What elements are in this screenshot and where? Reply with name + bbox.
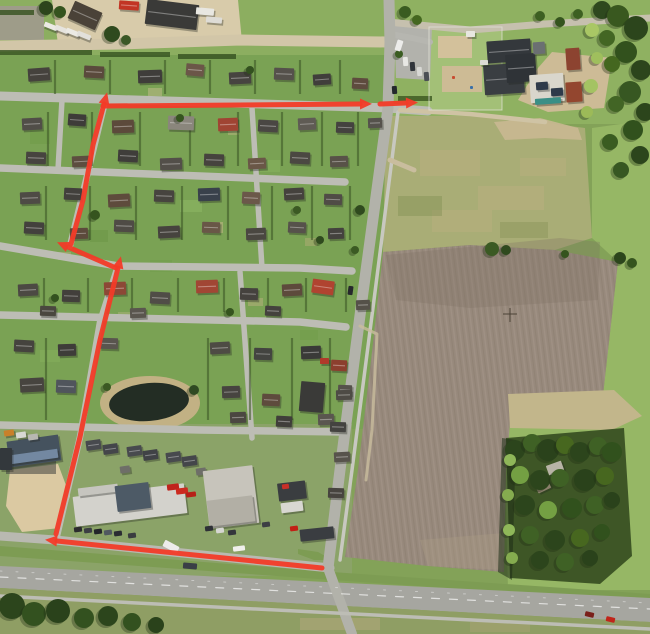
tree [503,524,515,536]
tree [355,205,365,215]
building [62,290,82,305]
roof-ridge [74,161,88,162]
tree [581,106,593,118]
tree [189,385,199,395]
vehicle [104,530,113,536]
tree [596,467,614,485]
building [40,306,58,319]
tree [226,308,234,316]
building [352,78,370,92]
tree [604,56,620,72]
tree [585,23,599,37]
building [206,16,224,25]
building-roof [565,48,581,71]
building [324,194,344,208]
roof-ridge [250,163,264,164]
roof-ridge [170,123,192,124]
hedgerow [178,54,236,59]
playground-sand [442,66,482,92]
tree [582,550,598,566]
building [313,73,333,87]
building [265,306,283,319]
playground-sand [438,36,472,58]
tree [573,9,583,19]
building-roof [533,42,546,55]
building [301,346,323,362]
vehicle [74,527,83,533]
building [196,7,216,18]
building-roof [466,31,475,37]
tree [574,469,596,491]
tree [535,11,545,21]
tree [123,613,141,631]
building [298,117,318,132]
roof-ridge [303,352,319,353]
roof-ridge [354,83,366,84]
yard-patch [90,230,108,242]
building [565,81,584,104]
building [254,348,274,363]
tree [614,252,626,264]
tree [602,134,618,150]
tree [562,498,582,518]
building [112,120,136,136]
vehicle [410,62,416,71]
pasture-patch [420,150,480,176]
building-roof [120,465,131,473]
tree [506,552,518,564]
yard-patch [300,330,318,340]
building [551,87,565,98]
tree [531,551,549,569]
tree [502,489,514,501]
vehicle [183,562,197,569]
tree [485,242,499,256]
yard-patch [148,88,162,96]
building [284,187,306,202]
tree [399,6,411,18]
roof-ridge [66,194,80,195]
building-roof [320,358,329,364]
roof-ridge [267,311,279,312]
building [258,119,280,134]
building [242,192,262,207]
tree [104,26,120,42]
roof-ridge [336,457,348,458]
tree [22,602,46,626]
tree [608,96,624,112]
roof-ridge [244,198,258,199]
vehicle [424,72,430,81]
roof-ridge [162,164,180,165]
building [207,495,258,529]
building [204,154,226,169]
tree [293,206,301,214]
route-line [380,103,406,104]
tree [631,146,649,164]
roof-ridge [333,365,345,366]
roof-ridge [206,160,222,161]
building [282,283,304,298]
vehicle [470,86,473,89]
building [331,360,349,374]
roof-ridge [220,124,236,125]
building [262,394,282,409]
building [20,377,46,394]
building [160,158,184,173]
roof-ridge [290,227,304,228]
building [328,488,346,501]
tree [551,469,569,487]
building [288,222,308,236]
building-roof [551,88,564,97]
building [274,68,296,83]
building [330,156,350,170]
tree [74,608,94,628]
building [115,482,154,514]
yard-patch [180,200,202,212]
building [67,113,87,128]
building [18,283,40,298]
building [276,416,294,430]
aerial-map [0,0,650,634]
building [198,188,222,204]
tree [604,492,620,508]
tree [515,495,535,515]
tree [539,501,557,519]
tree [591,52,603,64]
tree [316,236,324,244]
building [119,0,141,12]
vehicle [84,528,93,534]
tree [556,553,574,571]
building [248,157,268,171]
vehicle [282,484,290,490]
building [202,222,222,236]
building [118,149,140,164]
building [185,63,206,79]
building [28,67,52,84]
building [222,386,242,401]
building [22,117,44,132]
roof-ridge [114,126,132,127]
tree [561,250,569,258]
tree [351,246,359,254]
building [138,70,164,86]
building-roof [0,448,12,470]
tree [412,15,422,25]
vehicle [262,522,271,528]
yard-patch [40,350,60,362]
building-roof [480,60,488,65]
building [311,279,336,298]
building [108,193,132,209]
roof-ridge [248,234,264,235]
building [154,190,176,205]
vehicle [417,67,423,76]
building [334,452,352,465]
tree [594,524,610,540]
roof-ridge [58,386,74,387]
building [14,339,36,354]
tree [624,16,648,40]
tree [46,599,70,623]
vehicle [228,530,237,536]
pasture-patch [500,222,548,238]
tree [613,162,629,178]
building [240,288,260,303]
building [320,358,331,366]
tree [54,6,66,18]
tree [586,496,604,514]
building [158,225,182,240]
tree [246,66,254,74]
tree [39,1,53,15]
roof-ridge [140,76,160,77]
pasture-patch [478,186,544,210]
vehicle [94,529,103,535]
vehicle [290,526,299,532]
building-roof [536,82,549,91]
tree [98,606,118,626]
tree [103,383,111,391]
building [0,448,14,472]
building [246,228,268,243]
hedgerow [0,10,34,15]
building [536,81,550,92]
tree [511,466,529,484]
roof-ridge [156,196,172,197]
building-roof [565,81,582,102]
pasture-patch [520,158,566,176]
building [299,381,327,415]
building [336,122,356,136]
tree [570,442,590,462]
vehicle [128,533,137,539]
vehicle [403,57,409,66]
building [58,344,78,359]
route-line [103,104,360,106]
tree [121,35,131,45]
building [330,422,348,435]
building [210,341,232,356]
tree [571,529,589,547]
building [84,65,106,80]
building [130,308,148,321]
tree [545,530,565,550]
tree [501,245,511,255]
building [196,280,220,296]
tree [530,470,550,490]
tree [602,442,622,462]
tree [176,114,184,122]
vehicle [392,86,398,94]
tree [521,526,539,544]
building [368,118,384,131]
building [565,47,582,72]
building [533,41,547,56]
tree [555,17,565,27]
tree [599,30,615,46]
tree [504,454,516,466]
building [277,480,309,503]
roof-ridge [198,286,216,287]
tree [148,617,164,633]
roof-ridge [200,194,218,195]
building [328,228,346,242]
roof-ridge [300,124,314,125]
building [466,31,477,39]
roof-ridge [276,74,292,75]
building [150,291,172,306]
roof-ridge [278,421,290,422]
building-roof [207,495,256,526]
roof-ridge [116,226,132,227]
roof-ridge [264,400,278,401]
building [290,151,312,166]
hedgerow [100,52,170,57]
vehicle [452,76,455,79]
building [56,380,78,396]
tree [584,79,598,93]
building [230,412,248,426]
tree [627,258,637,268]
building-roof [277,480,307,501]
building [336,390,354,403]
vehicle [114,531,123,537]
hedgerow [0,50,92,55]
tree [51,294,59,302]
building [114,220,136,235]
tree [90,210,100,220]
gravel-farm-road [0,40,386,46]
vehicle [205,526,214,532]
pasture-patch [398,196,442,216]
building [356,300,372,313]
roof-ridge [22,198,38,199]
hedge-strip [398,96,432,101]
roof-ridge [28,158,44,159]
scrub-patch [300,618,380,630]
building-roof [299,381,326,413]
tree [623,120,643,140]
aerial-screenshot [0,0,650,634]
building [24,221,46,236]
building-roof [115,482,152,512]
building [100,338,120,352]
building [218,118,240,134]
building [26,152,48,167]
vehicle [216,528,225,534]
building [20,192,42,207]
